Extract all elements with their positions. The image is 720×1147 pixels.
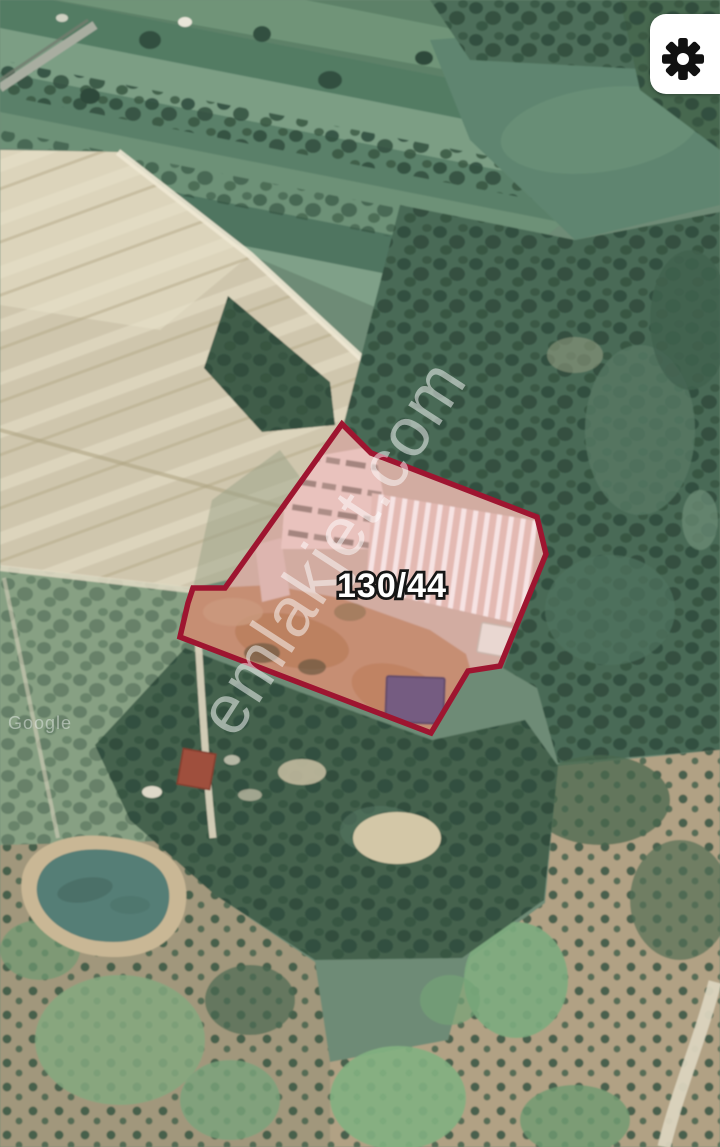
settings-button[interactable] (650, 14, 720, 94)
satellite-map[interactable]: emlakjet.com 130/44 Google (0, 0, 720, 1147)
gear-icon (661, 37, 705, 81)
satellite-map-view: emlakjet.com 130/44 Google (0, 0, 720, 1147)
farm-building (177, 748, 216, 789)
google-attribution: Google (8, 713, 72, 733)
parcel-label: 130/44 (337, 567, 447, 605)
